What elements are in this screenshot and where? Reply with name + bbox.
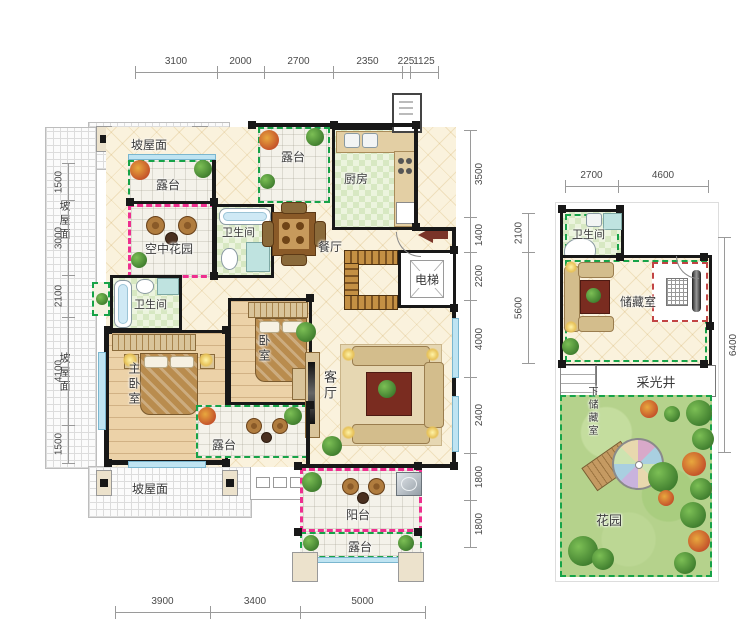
- shower-icon: [603, 213, 622, 230]
- column: [210, 272, 218, 280]
- dining-table: [272, 212, 316, 256]
- sofa-icon: [578, 316, 614, 332]
- pillar-base: [398, 552, 424, 582]
- terrace-label: 露台: [156, 176, 180, 193]
- lamp-icon: [342, 348, 355, 361]
- bush-planting: [194, 160, 212, 178]
- lamp-icon: [426, 348, 439, 361]
- cabinet-icon: [273, 477, 287, 488]
- bush-planting: [664, 406, 680, 422]
- column: [700, 253, 708, 261]
- bed-icon: [140, 353, 198, 415]
- dimension-value: 6400: [728, 333, 739, 355]
- bedroom-label: 卧室: [256, 334, 273, 364]
- floor-plan: 露台 露台 空中花园 卫生间 厨房 餐厅 电梯: [0, 0, 745, 640]
- stove-icon: [406, 158, 412, 164]
- column: [126, 198, 134, 206]
- dimension-value: 3400: [244, 596, 266, 607]
- column: [616, 253, 624, 261]
- wall: [212, 160, 216, 278]
- dimension-value: 2200: [474, 265, 485, 287]
- bush-planting: [674, 552, 696, 574]
- table-icon: [357, 492, 369, 504]
- bathroom-label: 卫生间: [134, 296, 167, 312]
- chair-icon: [146, 216, 165, 235]
- roof-label: 坡屋面: [132, 480, 168, 497]
- wall: [296, 464, 456, 468]
- window: [128, 461, 206, 468]
- bush-planting: [306, 128, 324, 146]
- column: [558, 360, 566, 368]
- light-well: 采光井: [596, 365, 716, 397]
- elevator: 电梯: [398, 250, 456, 308]
- dimension-value: 3000: [54, 226, 65, 248]
- roof-label: 坡屋面: [131, 136, 167, 153]
- dimension-value: 3500: [474, 162, 485, 184]
- dimension-value: 4000: [474, 327, 485, 349]
- wall: [126, 201, 216, 204]
- bathroom-label: 卫生间: [222, 224, 255, 240]
- flower-planting: [688, 530, 710, 552]
- column: [248, 121, 256, 129]
- column: [222, 459, 230, 467]
- column: [414, 462, 422, 470]
- chair-icon: [281, 202, 307, 214]
- window: [452, 318, 459, 378]
- dimension-value: 2350: [356, 56, 378, 67]
- column: [414, 528, 422, 536]
- column: [450, 246, 458, 254]
- dimension-value: 2700: [580, 170, 602, 181]
- column: [294, 528, 302, 536]
- plant-icon: [296, 322, 316, 342]
- flower-box: [92, 282, 110, 316]
- dimension-value: 2000: [229, 56, 251, 67]
- dimension-value: 5000: [351, 596, 373, 607]
- dimension-value: 1500: [54, 433, 65, 455]
- column: [306, 401, 314, 409]
- dimension-value: 2100: [514, 221, 525, 243]
- wardrobe-icon: [248, 302, 308, 318]
- bathroom-label: 卫生间: [572, 226, 605, 242]
- chair-icon: [368, 478, 385, 495]
- lamp-icon: [565, 321, 577, 333]
- kitchen-label: 厨房: [344, 170, 368, 187]
- column-icon: [100, 479, 108, 487]
- flower-planting: [259, 130, 279, 150]
- flower-planting: [640, 400, 658, 418]
- plate-icon: [282, 222, 290, 230]
- wall: [306, 403, 310, 466]
- flower-planting: [130, 160, 150, 180]
- chair-icon: [272, 418, 288, 434]
- flower-planting: [682, 452, 706, 476]
- light-well-label: 采光井: [636, 372, 675, 391]
- bush-planting: [303, 535, 319, 551]
- dimension-value: 4100: [54, 360, 65, 382]
- dimension-value: 3100: [165, 56, 187, 67]
- column: [450, 462, 458, 470]
- equipment-zone: [652, 262, 708, 322]
- stairs: [344, 263, 359, 297]
- pillar-base: [292, 552, 318, 582]
- dimension-value: 1125: [413, 56, 435, 67]
- dimension-value: 1800: [474, 465, 485, 487]
- chair-icon: [262, 221, 274, 247]
- lamp-icon: [342, 426, 355, 439]
- dimension-value: 1500: [54, 170, 65, 192]
- annotation-lines: [399, 101, 413, 103]
- bush-planting: [398, 535, 414, 551]
- dimension-value: 2700: [287, 56, 309, 67]
- bush-planting: [690, 478, 712, 500]
- column: [294, 462, 302, 470]
- sky-garden-label: 空中花园: [145, 240, 193, 257]
- dimension-value: 5600: [514, 296, 525, 318]
- dimension-value: 1400: [474, 223, 485, 245]
- living-label: 客厅: [320, 370, 339, 402]
- column: [700, 360, 708, 368]
- column: [558, 205, 566, 213]
- plant-icon: [586, 288, 601, 303]
- column-icon: [226, 479, 234, 487]
- balcony-label: 阳台: [346, 506, 370, 523]
- annotation-lines: [399, 107, 413, 109]
- column: [412, 121, 420, 129]
- garden-label: 花园: [596, 510, 622, 529]
- chair-icon: [178, 216, 197, 235]
- bush-planting: [260, 174, 275, 189]
- storage-label: 储藏室: [620, 293, 656, 310]
- dining-label: 餐厅: [318, 238, 342, 255]
- terrace-label: 露台: [212, 436, 236, 453]
- pillow-icon: [259, 321, 280, 333]
- plant-icon: [322, 436, 342, 456]
- column: [412, 223, 420, 231]
- dimension-value: 225: [398, 56, 415, 67]
- annotation-lines: [399, 113, 413, 115]
- sofa-icon: [352, 424, 430, 444]
- fridge-icon: [396, 202, 415, 224]
- floor-drain-icon: [396, 472, 422, 496]
- window: [452, 396, 459, 452]
- column: [210, 198, 218, 206]
- wall: [414, 123, 418, 231]
- plant-icon: [562, 338, 579, 355]
- pillow-icon: [144, 356, 168, 368]
- sink-icon: [362, 133, 378, 148]
- flower-planting: [198, 407, 216, 425]
- toilet-icon: [221, 248, 238, 270]
- stove-icon: [398, 158, 404, 164]
- plate-icon: [282, 236, 290, 244]
- stove-icon: [406, 168, 412, 174]
- bush-planting: [302, 472, 322, 492]
- column: [330, 121, 338, 129]
- entry-arrow-icon: [433, 231, 448, 239]
- column: [306, 294, 314, 302]
- wardrobe-icon: [112, 334, 196, 351]
- lamp-icon: [426, 426, 439, 439]
- flower-planting: [658, 490, 674, 506]
- column: [450, 304, 458, 312]
- dimension-value: 3900: [151, 596, 173, 607]
- shower-icon: [157, 278, 179, 295]
- sofa-icon: [424, 362, 444, 428]
- roof-pillar: [96, 470, 112, 496]
- dimension-value: 2100: [54, 285, 65, 307]
- sofa-icon: [352, 346, 430, 366]
- sink-icon: [586, 213, 602, 227]
- bush-planting: [96, 293, 108, 305]
- window: [98, 352, 106, 430]
- bush-planting: [648, 462, 678, 492]
- master-bedroom-label: 主卧室: [126, 362, 143, 407]
- sofa-icon: [578, 262, 614, 278]
- table-icon: [261, 432, 272, 443]
- column: [104, 459, 112, 467]
- dimension-value: 2400: [474, 404, 485, 426]
- chair-icon: [342, 478, 359, 495]
- plate-icon: [296, 236, 304, 244]
- stairs: [344, 295, 398, 310]
- column: [104, 326, 112, 334]
- column: [616, 205, 624, 213]
- bush-planting: [592, 548, 614, 570]
- wall: [414, 227, 456, 231]
- lamp-icon: [565, 261, 577, 273]
- roof-pillar: [222, 470, 238, 496]
- lamp-icon: [199, 353, 213, 367]
- plate-icon: [296, 222, 304, 230]
- bush-planting: [686, 400, 712, 426]
- bathtub-icon: [114, 280, 132, 328]
- bush-planting: [692, 428, 714, 450]
- chair-icon: [246, 418, 262, 434]
- plant-icon: [378, 380, 396, 398]
- toilet-icon: [136, 279, 154, 294]
- sink-icon: [344, 133, 360, 148]
- down-storage-label: 下储藏室: [584, 386, 599, 438]
- terrace-label: 露台: [348, 538, 372, 555]
- chair-icon: [281, 254, 307, 266]
- terrace-label: 露台: [281, 148, 305, 165]
- column: [222, 326, 230, 334]
- dimension-value: 4600: [652, 170, 674, 181]
- pillow-icon: [170, 356, 194, 368]
- bush-planting: [680, 502, 706, 528]
- stove-icon: [398, 168, 404, 174]
- column: [706, 322, 714, 330]
- grille-icon: [666, 278, 688, 306]
- elevator-label: 电梯: [413, 271, 441, 288]
- dimension-value: 1800: [474, 512, 485, 534]
- cabinet-icon: [256, 477, 270, 488]
